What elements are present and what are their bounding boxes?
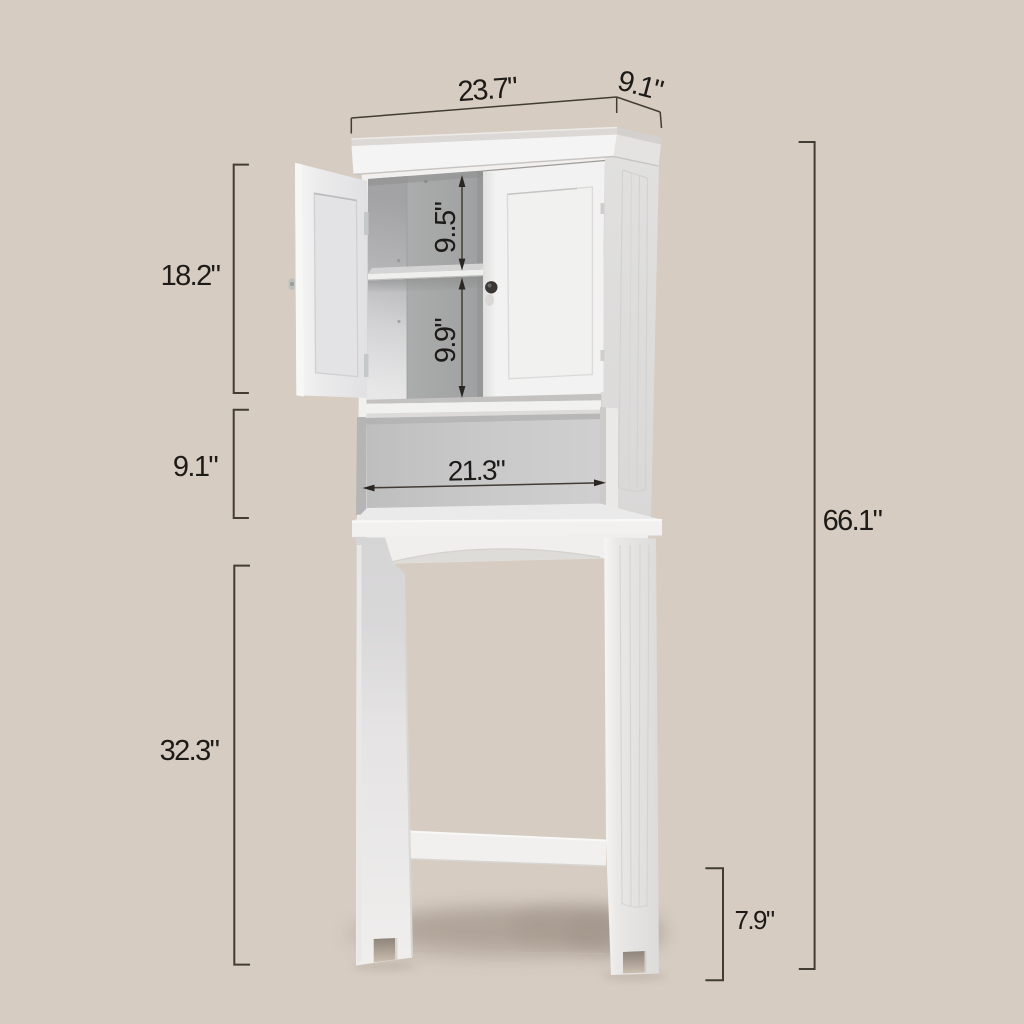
svg-text:7.9": 7.9"	[735, 905, 775, 935]
svg-text:21.3": 21.3"	[447, 454, 505, 486]
svg-text:32.3": 32.3"	[160, 735, 220, 767]
svg-text:23.7": 23.7"	[457, 72, 519, 109]
svg-text:9..5": 9..5"	[430, 201, 462, 253]
svg-text:66.1": 66.1"	[823, 505, 883, 537]
svg-text:9.1": 9.1"	[173, 451, 219, 483]
svg-text:18.2": 18.2"	[161, 260, 221, 292]
svg-text:9.9": 9.9"	[430, 318, 462, 364]
